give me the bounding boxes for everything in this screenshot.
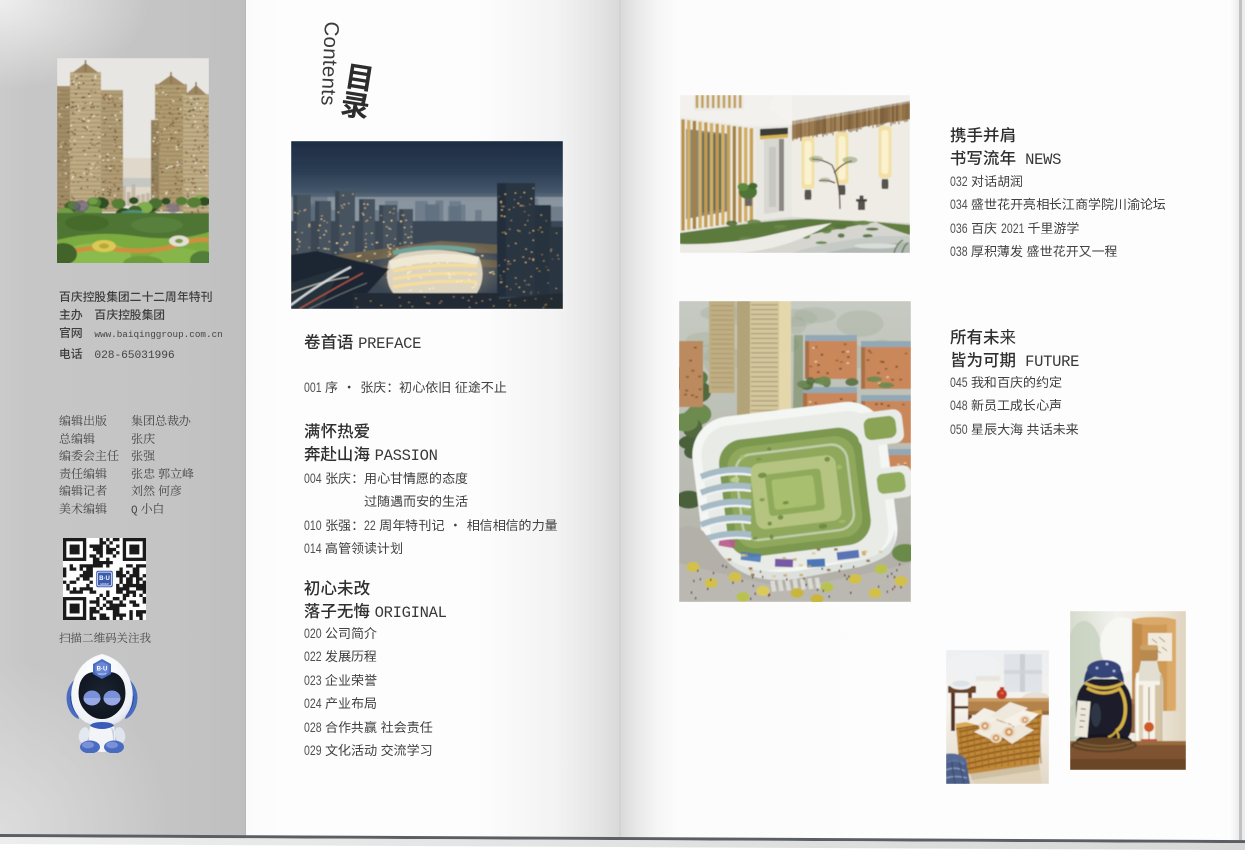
svg-text:GROUP: GROUP xyxy=(100,583,109,586)
svg-text:B·U: B·U xyxy=(99,576,110,582)
svg-text:GROUP: GROUP xyxy=(98,673,107,676)
svg-text:B·U: B·U xyxy=(97,667,108,673)
